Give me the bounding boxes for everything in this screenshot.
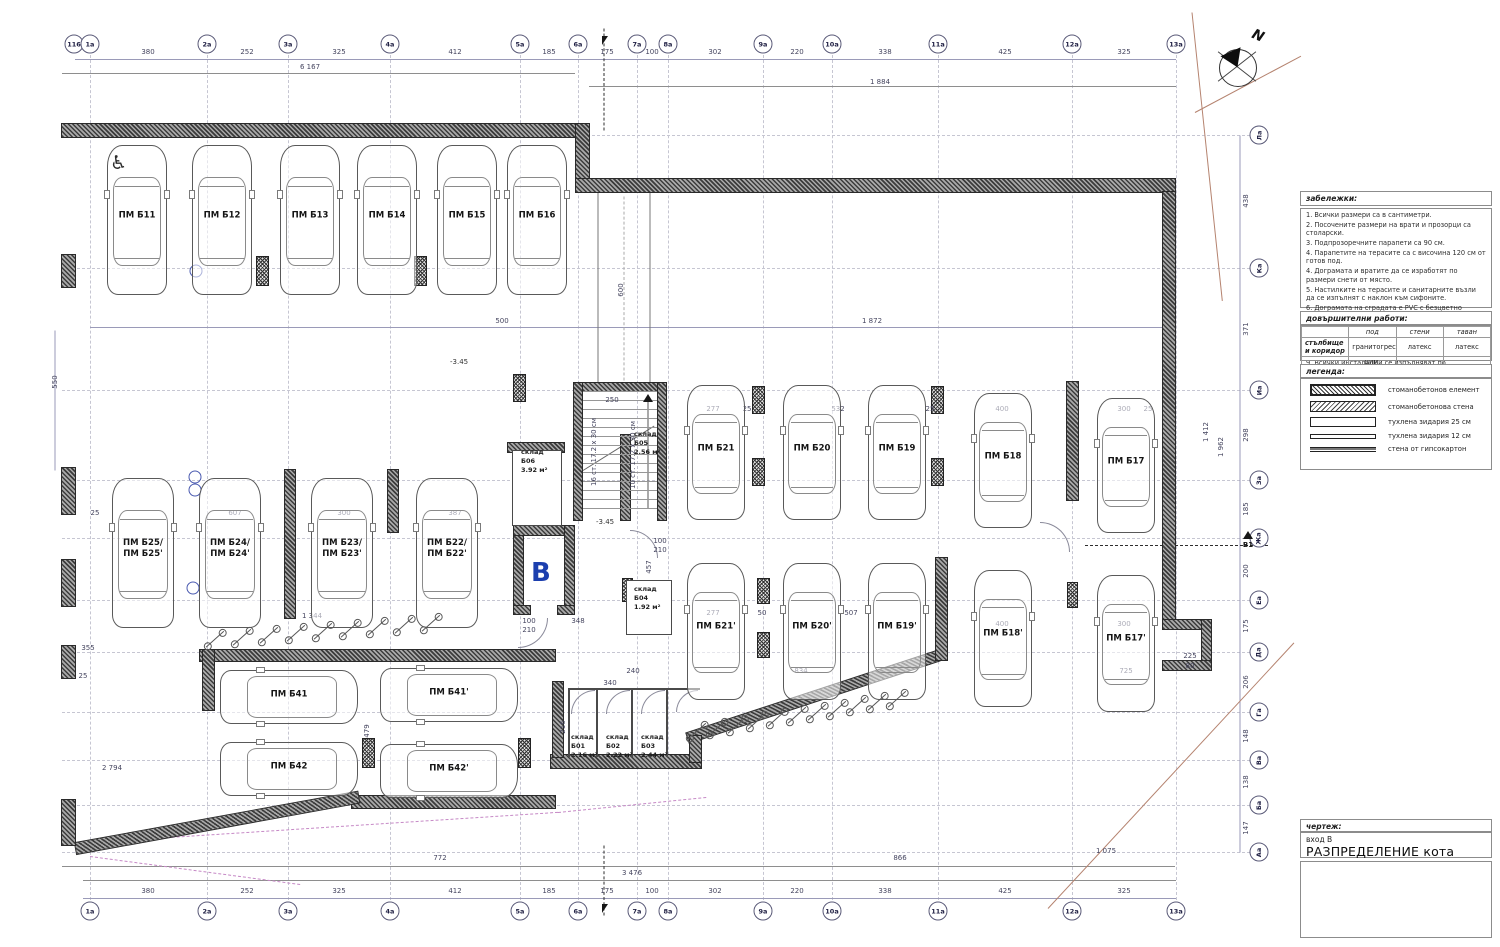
car-rear-line [695, 667, 738, 668]
storage-room-label: складБ032.44 м² [641, 733, 667, 759]
concrete-wall [1067, 382, 1078, 500]
legend-list: стоманобетонов елементстоманобетонова ст… [1301, 379, 1491, 453]
car-windshield-line [120, 519, 166, 520]
grid-bubble: 3а [279, 902, 298, 921]
section-marker-label: В1 [1243, 541, 1253, 549]
dimension-text: 1 884 [870, 78, 890, 86]
concrete-wall [62, 800, 75, 845]
car-mirror [370, 523, 376, 532]
finishes-title-box: довършителни работи: [1300, 311, 1492, 325]
level-mark: -3.45 [596, 518, 614, 526]
dimension-text: 1 962 [1217, 437, 1225, 457]
grid-bubble: 9а [754, 35, 773, 54]
car-mirror [1152, 617, 1158, 626]
parking-space-car: ПМ Б41 [220, 670, 358, 724]
car-mirror [1152, 439, 1158, 448]
car-windshield-line [115, 186, 159, 187]
legend-label: стоманобетонова стена [1388, 403, 1474, 411]
axis-dimension: 371 [1242, 322, 1250, 335]
dimension-text: 457 [645, 560, 653, 573]
dimension-text: 250 [605, 396, 618, 404]
section-flag-icon [602, 36, 608, 45]
parking-space-label: ПМ Б22/ПМ Б22' [427, 538, 467, 560]
grid-bubble: Га [1250, 703, 1269, 722]
car-mirror [494, 190, 500, 199]
dimension-text: 500 [495, 317, 508, 325]
axis-dimension: 175 [1242, 619, 1250, 632]
grid-bubble: Ва [1250, 751, 1269, 770]
grid-line-horizontal [62, 852, 1250, 853]
car-rear-line [695, 487, 738, 488]
parking-space-car: ПМ Б15 [437, 145, 497, 295]
car-mirror [1094, 617, 1100, 626]
car-windshield-line [445, 186, 489, 187]
axis-dimension: 325 [332, 887, 345, 895]
legend-swatch-outline [1310, 417, 1376, 427]
boundary-line [1048, 643, 1295, 909]
car-glasshouse [198, 177, 247, 266]
car-windshield-line [982, 430, 1025, 431]
car-mirror [971, 434, 977, 443]
parking-space-car: ПМ Б20 [783, 385, 841, 520]
car-mirror [416, 741, 425, 747]
dimension-text: 2 794 [102, 764, 122, 772]
car-mirror [413, 523, 419, 532]
motorcycle-icon [260, 627, 283, 648]
dimension-text: 210 [653, 546, 666, 554]
column [757, 632, 770, 658]
car-mirror [923, 426, 929, 435]
axis-dimension: 147 [1242, 821, 1250, 834]
dimension-line [90, 327, 1163, 328]
floor-plan-drawing: 1161а1а2а2а3а3а4а4а5а5а6а6а7а7а8а8а9а9а1… [0, 0, 1500, 947]
column [518, 738, 531, 768]
car-windshield-line [695, 600, 738, 601]
grid-bubble: 10а [823, 902, 842, 921]
car-rear-line [365, 258, 409, 259]
parking-space-label: ПМ Б42' [429, 764, 468, 775]
concrete-wall [558, 606, 574, 614]
car-mirror [742, 605, 748, 614]
car-mirror [971, 612, 977, 621]
legend-label: стена от гипсокартон [1388, 445, 1466, 453]
car-mirror [354, 190, 360, 199]
concrete-wall [62, 255, 75, 287]
car-mirror [865, 426, 871, 435]
parking-space-car: ПМ Б22/ПМ Б22' [416, 478, 478, 628]
concrete-wall [62, 560, 75, 606]
parking-space-label: ПМ Б17' [1106, 634, 1145, 645]
parking-space-car: ПМ Б17' [1097, 575, 1155, 712]
concrete-wall [1163, 192, 1175, 624]
car-rear-line [515, 258, 559, 259]
plan-line [62, 866, 1175, 867]
finishes-cell: латекс [1443, 338, 1490, 357]
legend-label: стоманобетонов елемент [1388, 386, 1479, 394]
finishes-cell: гранитогрес [1349, 338, 1396, 357]
grid-bubble: 12а [1063, 902, 1082, 921]
car-rear-line [200, 258, 244, 259]
grid-bubble: 1а [81, 902, 100, 921]
car-rear-line [982, 674, 1025, 675]
axis-dimension: 185 [1242, 502, 1250, 515]
axis-dimension: 380 [141, 48, 154, 56]
car-mirror [838, 605, 844, 614]
axis-dimension: 100 [645, 48, 658, 56]
axis-dimension: 1 075 [1096, 847, 1116, 855]
car-mirror [923, 605, 929, 614]
axis-dimension: 866 [893, 854, 906, 862]
legend-label: тухлена зидария 12 см [1388, 432, 1471, 440]
car-windshield-line [1105, 435, 1148, 436]
parking-space-car: ПМ Б25/ПМ Б25' [112, 478, 174, 628]
car-mirror [249, 190, 255, 199]
parking-space-car: ПМ Б41' [380, 668, 518, 722]
dimension-text: 25 [91, 509, 100, 517]
car-glasshouse [363, 177, 412, 266]
door-swing-icon [571, 690, 595, 714]
car-mirror [1029, 434, 1035, 443]
dimension-text: 100 [522, 617, 535, 625]
grid-bubble: 5а [511, 902, 530, 921]
parking-space-label: ПМ Б19 [879, 443, 916, 454]
boundary-line [1192, 12, 1223, 301]
axis-dimension: 206 [1242, 675, 1250, 688]
stair-arrow-icon [643, 394, 653, 402]
dimension-line [83, 898, 1176, 899]
car-rear-line [424, 591, 470, 592]
grid-bubble: 7а [628, 35, 647, 54]
dimension-text: 6 167 [300, 63, 320, 71]
axis-dimension: 175 [600, 48, 613, 56]
legend-item: стоманобетонов елемент [1301, 379, 1491, 396]
dimension-text: 1 872 [862, 317, 882, 325]
car-windshield-line [1105, 612, 1148, 613]
car-mirror [171, 523, 177, 532]
motorcycle-icon [233, 629, 256, 650]
legend-swatch-gypsum [1310, 447, 1376, 452]
motorcycle-icon [395, 617, 418, 638]
axis-dimension: 325 [332, 48, 345, 56]
axis-dimension: 412 [448, 887, 461, 895]
axis-dimension: 100 [645, 887, 658, 895]
axis-dimension: 325 [1117, 48, 1130, 56]
car-mirror [684, 605, 690, 614]
grid-line-horizontal [62, 805, 1250, 806]
parking-space-label: ПМ Б15 [449, 210, 486, 221]
axis-dimension: 425 [998, 887, 1011, 895]
car-rear-line [1105, 500, 1148, 501]
finishes-header-cell: таван [1443, 327, 1490, 338]
dimension-text: 507 [844, 609, 857, 617]
concrete-wall [514, 526, 523, 614]
car-windshield-line [791, 600, 834, 601]
note-item: 5. Настилките на терасите и санитарните … [1301, 284, 1491, 302]
car-mirror [109, 523, 115, 532]
grid-bubble: 13а [1167, 35, 1186, 54]
parking-space-label: ПМ Б42 [271, 762, 308, 773]
car-mirror [256, 667, 265, 673]
car-mirror [416, 795, 425, 801]
grid-bubble: Аа [1250, 843, 1269, 862]
car-rear-line [120, 591, 166, 592]
grid-bubble: 8а [659, 902, 678, 921]
door-swing-icon [606, 690, 630, 714]
car-mirror [104, 190, 110, 199]
note-item: 3. Подпрозоречните парапети са 90 см. [1301, 237, 1491, 247]
storage-room-label: складБ041.92 м² [634, 585, 660, 611]
column [752, 386, 765, 414]
car-mirror [742, 426, 748, 435]
concrete-wall [285, 470, 295, 618]
grid-bubble: 4а [381, 902, 400, 921]
concrete-wall [203, 650, 214, 710]
axis-dimension: 185 [542, 48, 555, 56]
car-mirror [416, 719, 425, 725]
axis-dimension: 252 [240, 887, 253, 895]
grid-bubble: Ка [1250, 259, 1269, 278]
car-windshield-line [288, 186, 332, 187]
axis-dimension: 200 [1242, 564, 1250, 577]
finishes-header-cell: под [1349, 327, 1396, 338]
grid-bubble: Иа [1250, 381, 1269, 400]
car-rear-line [207, 591, 253, 592]
car-mirror [1029, 612, 1035, 621]
note-item: 4. Парапетите на терасите са с височина … [1301, 247, 1491, 265]
legend-title: легенда: [1301, 365, 1491, 378]
axis-dimension: 325 [1117, 887, 1130, 895]
car-mirror [414, 190, 420, 199]
finishes-header-cell: стени [1396, 327, 1443, 338]
section-marker-icon [1243, 531, 1253, 539]
grid-bubble: 7а [628, 902, 647, 921]
column [256, 256, 269, 286]
dimension-line [75, 59, 1176, 60]
parking-space-car: ПМ Б12 [192, 145, 252, 295]
motorcycle-icon [206, 631, 229, 652]
plan-line [83, 880, 1176, 881]
axis-dimension: 148 [1242, 729, 1250, 742]
car-rear-line [1105, 679, 1148, 680]
legend-title-box: легенда: [1300, 364, 1492, 378]
legend-swatch-diagonal [1310, 401, 1376, 412]
car-windshield-line [319, 519, 365, 520]
car-mirror [838, 426, 844, 435]
dimension-text: 340 [603, 679, 616, 687]
car-mirror [337, 190, 343, 199]
car-windshield-line [365, 186, 409, 187]
parking-space-label: ПМ Б21' [696, 622, 735, 633]
parking-space-car: ПМ Б11♿ [107, 145, 167, 295]
parking-space-car: ПМ Б24/ПМ Б24' [199, 478, 261, 628]
partition-wall [568, 688, 700, 690]
parking-space-car: ПМ Б16 [507, 145, 567, 295]
parking-space-car: ПМ Б23/ПМ Б23' [311, 478, 373, 628]
dimension-text: 1 412 [1202, 422, 1210, 442]
finishes-cell: стълбище и коридор [1302, 338, 1349, 357]
car-rear-line [288, 258, 332, 259]
dimension-line [1240, 136, 1241, 853]
car-mirror [256, 793, 265, 799]
car-mirror [164, 190, 170, 199]
concrete-wall [514, 606, 530, 614]
parking-space-car: ПМ Б13 [280, 145, 340, 295]
concrete-wall [75, 792, 359, 854]
plan-line [62, 73, 575, 74]
car-windshield-line [200, 186, 244, 187]
grid-bubble: 10а [823, 35, 842, 54]
concrete-wall [576, 179, 1175, 192]
storage-room-label: складБ012.16 м² [571, 733, 597, 759]
parking-space-label: ПМ Б19' [877, 622, 916, 633]
parking-space-label: ПМ Б20' [792, 622, 831, 633]
car-rear-line [876, 487, 919, 488]
car-mirror [475, 523, 481, 532]
plan-line [650, 193, 651, 384]
parking-space-label: ПМ Б41 [271, 690, 308, 701]
parking-space-label: ПМ Б17 [1108, 456, 1145, 467]
dimension-text: 550 [51, 375, 59, 388]
notes-title-box: забележки: [1300, 191, 1492, 206]
axis-dimension: 220 [790, 887, 803, 895]
finishes-title: довършителни работи: [1301, 312, 1491, 325]
car-mirror [1094, 439, 1100, 448]
legend-item: тухлена зидария 12 см [1301, 427, 1491, 440]
parking-space-label: ПМ Б21 [698, 443, 735, 454]
dimension-text: 16 ст. 17.2 х 30 см [590, 418, 598, 486]
dimension-line [55, 331, 56, 471]
car-rear-line [319, 591, 365, 592]
axis-dimension: 338 [878, 48, 891, 56]
legend-item: стена от гипсокартон [1301, 440, 1491, 453]
dimension-text: 216 [559, 720, 567, 733]
concrete-wall [936, 558, 947, 660]
grid-bubble: 1а [81, 35, 100, 54]
parking-space-label: ПМ Б18 [985, 451, 1022, 462]
motorcycle-icon [287, 625, 310, 646]
dimension-text: 50 [758, 609, 767, 617]
dimension-text: 100 [653, 537, 666, 545]
concrete-wall [574, 383, 582, 520]
dimension-text: 240 [626, 667, 639, 675]
finishes-table-box: подстенитаванстълбище и коридоргранитогр… [1300, 325, 1492, 361]
parking-space-label: ПМ Б41' [429, 688, 468, 699]
parking-space-car: ПМ Б18 [974, 393, 1032, 528]
plan-line [598, 193, 599, 384]
concrete-wall [62, 124, 576, 137]
notes-title: забележки: [1301, 192, 1491, 205]
axis-dimension: 3 476 [622, 869, 642, 877]
column [931, 458, 944, 486]
car-windshield-line [876, 422, 919, 423]
parking-space-car: ПМ Б19' [868, 563, 926, 700]
parking-space-car: ПМ Б18' [974, 570, 1032, 707]
car-mirror [564, 190, 570, 199]
axis-dimension: 772 [433, 854, 446, 862]
concrete-wall [62, 468, 75, 514]
grid-bubble: 5а [511, 35, 530, 54]
entrance-letter: В [531, 558, 551, 588]
grid-bubble: 2а [198, 902, 217, 921]
dimension-text: 25 [79, 672, 88, 680]
titleblock-box: вход В РАЗПРЕДЕЛЕНИЕ кота -3.45 [1300, 832, 1492, 858]
grid-bubble: 9а [754, 902, 773, 921]
grid-bubble: 6а [569, 35, 588, 54]
finishes-cell: латекс [1396, 338, 1443, 357]
note-item: 1. Всички размери са в сантиметри. [1301, 209, 1491, 219]
car-windshield-line [695, 422, 738, 423]
grid-bubble: Еа [1250, 591, 1269, 610]
column [362, 738, 375, 768]
grid-bubble: 12а [1063, 35, 1082, 54]
axis-dimension: 338 [878, 887, 891, 895]
car-mirror [865, 605, 871, 614]
grid-bubble: 3а [279, 35, 298, 54]
grid-bubble: 11а [929, 35, 948, 54]
door-tag [187, 582, 200, 595]
storage-room-label: складБ063.92 м² [521, 448, 547, 474]
grid-bubble: 2а [198, 35, 217, 54]
dimension-text: 210 [522, 626, 535, 634]
axis-dimension: 252 [240, 48, 253, 56]
storage-room-label: складБ052.56 м² [634, 430, 660, 456]
car-glasshouse [286, 177, 335, 266]
dimension-text: 25 [926, 405, 935, 413]
column [757, 578, 770, 604]
grid-bubble: Ла [1250, 126, 1269, 145]
legend-label: тухлена зидария 25 см [1388, 418, 1471, 426]
legend-item: тухлена зидария 25 см [1301, 412, 1491, 427]
parking-space-label: ПМ Б11 [119, 210, 156, 221]
car-mirror [416, 665, 425, 671]
parking-space-label: ПМ Б16 [519, 210, 556, 221]
grid-bubble: Ба [1250, 796, 1269, 815]
titleblock-label-box: чертеж: [1300, 819, 1492, 832]
car-rear-line [791, 667, 834, 668]
parking-space-car: ПМ Б21' [687, 563, 745, 700]
concrete-wall [565, 526, 574, 614]
finishes-header-cell [1302, 327, 1349, 338]
car-windshield-line [515, 186, 559, 187]
parking-space-label: ПМ Б24/ПМ Б24' [210, 538, 250, 560]
dimension-text: 348 [571, 617, 584, 625]
axis-dimension: 298 [1242, 428, 1250, 441]
grid-bubble: 6а [569, 902, 588, 921]
notes-box: 1. Всички размери са в сантиметри.2. Пос… [1300, 208, 1492, 308]
door-tag [189, 471, 202, 484]
car-rear-line [115, 258, 159, 259]
level-mark: -3.45 [450, 358, 468, 366]
car-windshield-line [791, 422, 834, 423]
car-mirror [256, 721, 265, 727]
column [513, 374, 526, 402]
plan-line [589, 86, 1176, 87]
axis-dimension: 380 [141, 887, 154, 895]
plan-area: 1161а1а2а2а3а3а4а4а5а5а6а6а7а7а8а8а9а9а1… [0, 0, 1300, 947]
parking-space-car: ПМ Б42' [380, 744, 518, 798]
car-windshield-line [876, 600, 919, 601]
dimension-text: 80 [1186, 662, 1195, 670]
legend-swatch-crosshatch [1310, 384, 1376, 396]
car-mirror [189, 190, 195, 199]
car-glasshouse [443, 177, 492, 266]
car-mirror [504, 190, 510, 199]
axis-dimension: 138 [1242, 775, 1250, 788]
car-windshield-line [207, 519, 253, 520]
parking-space-car: ПМ Б42 [220, 742, 358, 796]
car-rear-line [876, 667, 919, 668]
parking-space-car: ПМ Б17 [1097, 398, 1155, 533]
